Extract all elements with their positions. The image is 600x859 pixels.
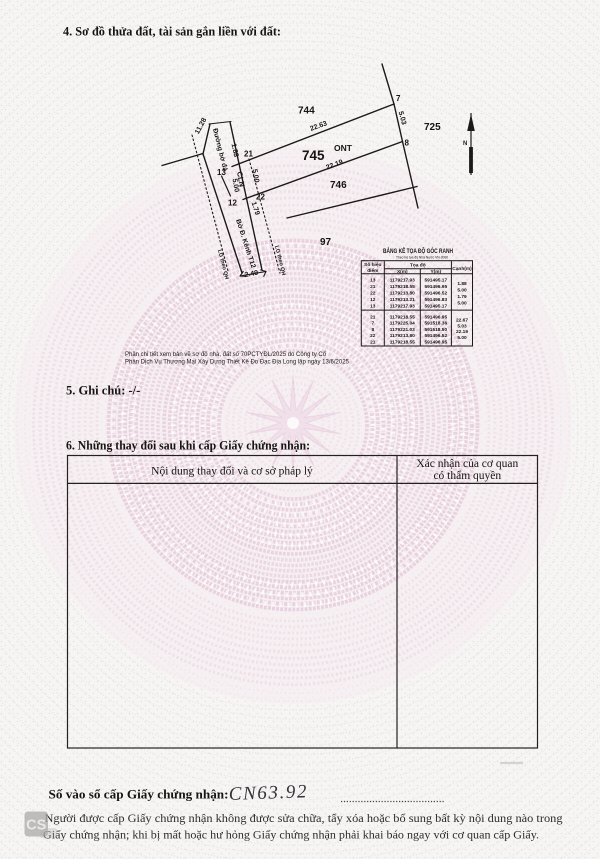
- svg-text:5.00: 5.00: [457, 288, 467, 294]
- svg-text:X(m): X(m): [397, 269, 408, 275]
- svg-text:Xác nhận của cơ quan: Xác nhận của cơ quan: [416, 458, 518, 470]
- svg-text:591518.36: 591518.36: [424, 321, 447, 327]
- svg-text:N: N: [463, 141, 467, 147]
- svg-text:1179218.55: 1179218.55: [390, 315, 415, 321]
- svg-text:có thẩm quyền: có thẩm quyền: [433, 469, 501, 482]
- svg-text:Người được cấp Giấy chứng nhận: Người được cấp Giấy chứng nhận không đượ…: [45, 812, 563, 825]
- svg-text:22: 22: [370, 291, 376, 297]
- svg-text:591496.95: 591496.95: [424, 315, 447, 321]
- svg-text:Theo hệ tọa độ Nhà Nước VN-200: Theo hệ tọa độ Nhà Nước VN-2000: [396, 255, 449, 260]
- svg-text:điểm: điểm: [367, 267, 378, 274]
- svg-text:21: 21: [244, 150, 253, 159]
- svg-text:Phần chi tiết xem bản vẽ sơ đồ: Phần chi tiết xem bản vẽ sơ đồ nhà, đất …: [125, 351, 327, 358]
- svg-text:591518.50: 591518.50: [424, 327, 447, 333]
- svg-text:97: 97: [320, 237, 332, 248]
- svg-text:CS: CS: [26, 818, 46, 834]
- svg-text:6. Những thay đổi sau khi cấp: 6. Những thay đổi sau khi cấp Giấy chứng…: [66, 439, 310, 453]
- svg-text:13: 13: [370, 278, 376, 284]
- svg-text:1179213.80: 1179213.80: [390, 333, 415, 339]
- svg-text:Giấy chứng nhận; khi bị mất ho: Giấy chứng nhận; khi bị mất hoặc hư hỏng…: [43, 829, 539, 842]
- svg-text:591495.17: 591495.17: [424, 304, 447, 310]
- svg-text:Y(m): Y(m): [430, 269, 441, 275]
- svg-text:591495.17: 591495.17: [424, 278, 447, 284]
- svg-text:Số vào sổ cấp Giấy chứng nhận:: Số vào sổ cấp Giấy chứng nhận:: [49, 788, 229, 802]
- svg-text:1179213.80: 1179213.80: [390, 291, 415, 297]
- svg-text:ONT: ONT: [334, 143, 353, 153]
- svg-text:7: 7: [396, 94, 401, 103]
- svg-text:5. Ghi chú: -/-: 5. Ghi chú: -/-: [66, 384, 140, 398]
- svg-text:21: 21: [370, 315, 376, 321]
- svg-text:5.03: 5.03: [457, 323, 467, 329]
- svg-text:1179217.93: 1179217.93: [390, 304, 415, 310]
- svg-text:591496.83: 591496.83: [424, 297, 447, 303]
- svg-text:5.00: 5.00: [457, 301, 467, 307]
- svg-text:4. Sơ đồ thửa đất, tài sản gắn: 4. Sơ đồ thửa đất, tài sản gắn liền với …: [63, 25, 281, 39]
- svg-text:7: 7: [371, 321, 374, 327]
- svg-text:1179221.03: 1179221.03: [390, 327, 415, 333]
- svg-text:1179217.93: 1179217.93: [390, 278, 415, 284]
- svg-text:1.88: 1.88: [457, 281, 467, 287]
- svg-text:22: 22: [370, 333, 376, 339]
- svg-text:1179225.04: 1179225.04: [390, 321, 415, 327]
- svg-text:Tọa độ: Tọa độ: [410, 263, 426, 269]
- svg-text:591496.52: 591496.52: [424, 291, 447, 297]
- svg-text:CN63.92: CN63.92: [228, 781, 308, 805]
- svg-text:745: 745: [302, 148, 325, 163]
- svg-text:1179218.55: 1179218.55: [390, 284, 415, 290]
- svg-text:591496.95: 591496.95: [424, 284, 447, 290]
- svg-text:12: 12: [228, 199, 237, 208]
- svg-text:Nội dung thay đổi và cơ sở phá: Nội dung thay đổi và cơ sở pháp lý: [151, 465, 313, 478]
- svg-text:Cạnh(m): Cạnh(m): [452, 266, 472, 272]
- svg-text:746: 746: [330, 180, 347, 191]
- svg-text:21: 21: [370, 339, 376, 345]
- svg-text:22.67: 22.67: [456, 318, 468, 324]
- svg-text:591496.95: 591496.95: [424, 339, 447, 345]
- svg-text:13: 13: [370, 304, 376, 310]
- svg-text:1179213.21: 1179213.21: [390, 297, 415, 303]
- svg-text:8: 8: [371, 327, 374, 333]
- svg-text:Số hiệu: Số hiệu: [364, 261, 381, 268]
- svg-text:21: 21: [370, 284, 376, 290]
- svg-text:591496.52: 591496.52: [424, 333, 447, 339]
- svg-text:744: 744: [298, 106, 315, 117]
- svg-text:Phần Dịch Vụ Thương Mại Xây Dự: Phần Dịch Vụ Thương Mại Xây Dựng Thiết K…: [125, 360, 350, 366]
- svg-text:1179218.55: 1179218.55: [390, 339, 415, 345]
- svg-text:5.00: 5.00: [457, 335, 467, 341]
- svg-text:8: 8: [405, 139, 410, 148]
- svg-text:22.19: 22.19: [456, 329, 468, 335]
- svg-text:1.79: 1.79: [457, 294, 467, 300]
- svg-text:725: 725: [424, 122, 441, 133]
- svg-text:12: 12: [370, 297, 376, 303]
- svg-text:22: 22: [256, 193, 265, 202]
